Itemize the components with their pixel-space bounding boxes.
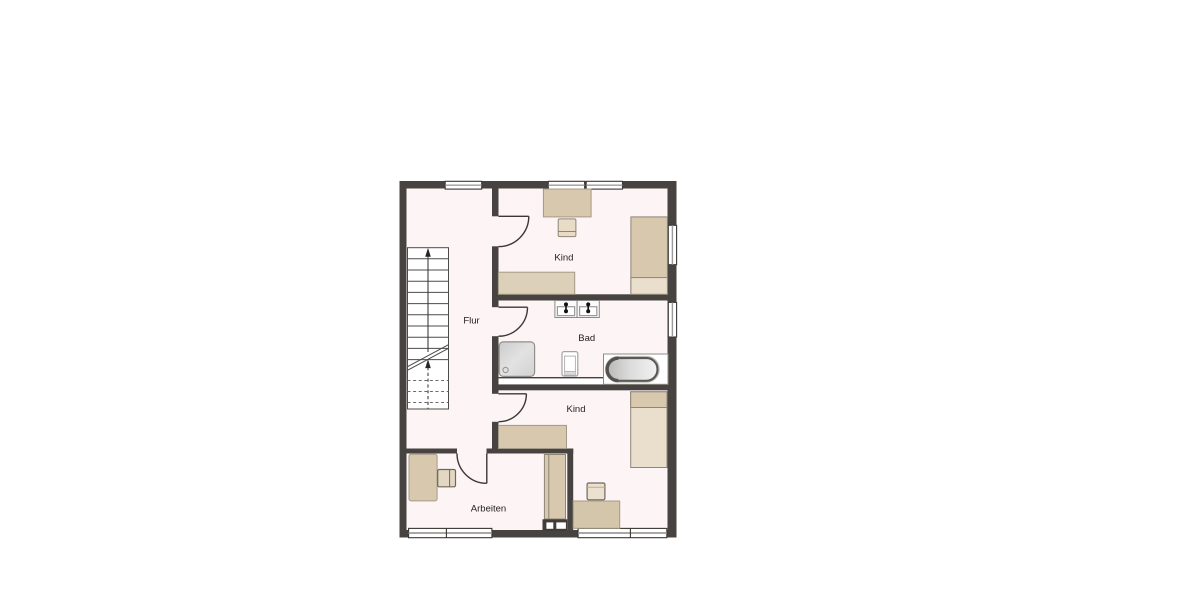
svg-text:Bad: Bad (578, 333, 595, 344)
svg-text:Kind: Kind (566, 404, 585, 415)
svg-text:Arbeiten: Arbeiten (471, 504, 506, 515)
svg-text:Flur: Flur (463, 315, 479, 326)
svg-text:Kind: Kind (554, 253, 573, 264)
